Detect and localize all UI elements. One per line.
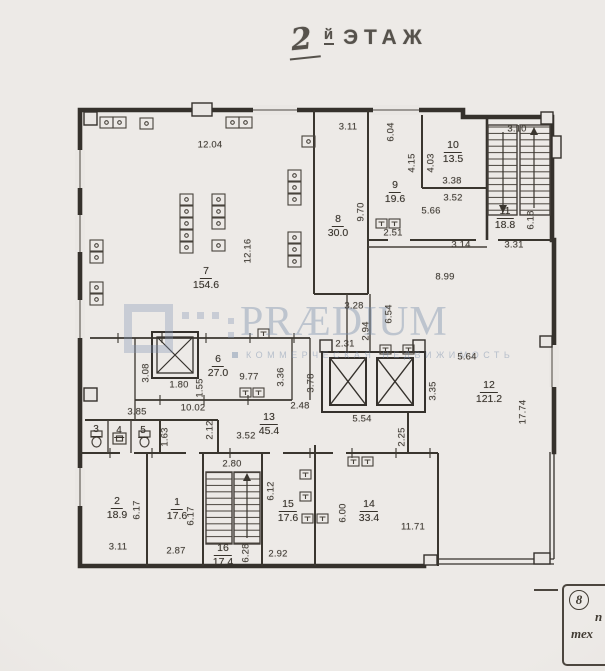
- dimension-label: 1.80: [169, 380, 188, 390]
- dimension-label: 1.55: [195, 378, 205, 397]
- room-label-10: 1013.5: [443, 139, 463, 165]
- dimension-label: 3.28: [344, 301, 363, 311]
- dimension-label: 6.54: [384, 304, 394, 323]
- dimension-label: 5.64: [457, 352, 476, 362]
- interior-walls-light: [108, 247, 487, 453]
- dimension-label: 3.11: [339, 122, 358, 132]
- room-label-9: 919.6: [385, 179, 405, 205]
- floorplan-drawing: [0, 0, 605, 671]
- dimension-label: 3.52: [443, 193, 462, 203]
- room-label-4: 4: [114, 425, 124, 438]
- floor-word: ЭТАЖ: [343, 26, 428, 49]
- floor-suffix: й: [324, 26, 334, 45]
- vent-symbols: [240, 219, 414, 523]
- room-label-13: 1345.4: [259, 411, 279, 437]
- dimension-label: 5.66: [421, 206, 440, 216]
- dimension-label: 3.31: [504, 240, 523, 250]
- dimension-label: 3.14: [451, 240, 470, 250]
- dimension-label: 2.80: [222, 459, 241, 469]
- outer-walls-thin: [424, 452, 554, 564]
- room-label-8: 830.0: [328, 213, 348, 239]
- room-label-11: 1118.8: [495, 205, 515, 231]
- dimension-label: 4.15: [407, 153, 417, 172]
- dimension-label: 2.31: [335, 339, 354, 349]
- dimension-label: 2.87: [166, 546, 185, 556]
- stamp-text-line1: п: [595, 609, 602, 625]
- room-label-2: 218.9: [107, 495, 127, 521]
- dimension-label: 12.04: [198, 140, 223, 150]
- room-label-5: 5: [138, 425, 148, 438]
- floor-title: 2йЭТАЖ: [288, 22, 428, 59]
- dimension-label: 5.54: [352, 414, 371, 424]
- dimension-label: 6.04: [386, 122, 396, 141]
- stamp-tick-line: [534, 589, 558, 591]
- dimension-label: 6.28: [241, 543, 251, 562]
- dimension-label: 2.92: [268, 549, 287, 559]
- room-label-14: 1433.4: [359, 498, 379, 524]
- dimension-label: 17.74: [518, 400, 528, 425]
- dimension-label: 3.11: [109, 542, 128, 552]
- dimension-label: 3.36: [276, 367, 286, 386]
- dimension-label: 11.71: [401, 522, 425, 532]
- dimension-label: 3.08: [141, 363, 151, 382]
- room-label-15: 1517.6: [278, 498, 298, 524]
- room-label-16: 1617.4: [213, 542, 233, 568]
- room-label-1: 117.6: [167, 496, 187, 522]
- dimension-label: 6.17: [132, 500, 142, 519]
- corner-stamp: 8 п тех: [562, 584, 605, 666]
- staircase-bottom: [206, 472, 260, 544]
- room-label-6: 627.0: [208, 353, 228, 379]
- dimension-label: 9.70: [356, 202, 366, 221]
- dimension-label: 2.94: [361, 321, 371, 340]
- dimension-label: 6.18: [526, 210, 536, 229]
- floor-number-handwritten: 2: [286, 20, 321, 60]
- dimension-label: 6.17: [186, 506, 196, 525]
- dimension-label: 10.02: [181, 403, 206, 413]
- stamp-number-badge: 8: [569, 590, 589, 610]
- dimension-label: 2.48: [290, 401, 309, 411]
- dimension-label: 3.10: [507, 124, 526, 134]
- dimension-label: 3.78: [306, 373, 316, 392]
- dimension-label: 6.00: [338, 503, 348, 522]
- room-label-12: 12121.2: [476, 379, 502, 405]
- dimension-label: 3.35: [428, 381, 438, 400]
- dimension-label: 3.38: [442, 176, 461, 186]
- dimension-label: 9.77: [239, 372, 258, 382]
- dimension-label: 3.52: [236, 431, 255, 441]
- staircase-top-right: [488, 125, 550, 215]
- room-label-3: 3: [91, 424, 101, 437]
- dimension-label: 8.99: [435, 272, 454, 282]
- dimension-label: 2.12: [205, 420, 215, 439]
- room-label-7: 7154.6: [193, 265, 219, 291]
- dimension-label: 6.12: [266, 481, 276, 500]
- dimension-label: 1.63: [160, 427, 170, 446]
- stamp-text-line2: тех: [571, 626, 593, 642]
- scanned-floor-plan-page: PRÆDIUM КОММЕРЧЕСКАЯ НЕДВИЖИМОСТЬ 2йЭТАЖ…: [0, 0, 605, 671]
- dimension-label: 3.85: [127, 407, 146, 417]
- dimension-label: 2.25: [397, 427, 407, 446]
- dimension-label: 12.16: [243, 239, 253, 264]
- dimension-label: 4.03: [426, 153, 436, 172]
- dimension-label: 2.51: [383, 228, 402, 238]
- elevator-shafts: [320, 340, 425, 412]
